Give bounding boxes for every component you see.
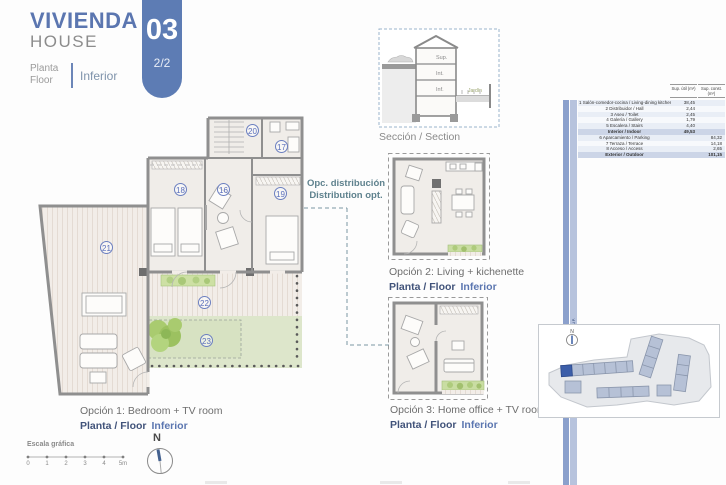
planter-icon	[448, 245, 482, 252]
header-divider	[71, 63, 73, 88]
scale-tick-label: 2	[61, 461, 71, 467]
area-table-sections: PLANTA / FLOOR SUP.1 Salón-comedor-cocin…	[570, 100, 725, 485]
option3-floor: Planta / FloorInferior	[390, 419, 498, 431]
table-row: Exterior / Outdoor101,15	[578, 152, 725, 158]
col-header-useful-area: Sup. útil (m²)	[670, 84, 697, 98]
room-number-18: 18	[174, 183, 187, 196]
level-label-int: Int.	[436, 71, 444, 77]
level-label-inf: Inf.	[436, 87, 444, 93]
unit-number-badge: 03 2/2	[142, 0, 182, 98]
site-plan-box: N	[538, 324, 720, 418]
scale-tick-labels: 012345m	[23, 461, 143, 469]
option1-floor: Planta / FloorInferior	[80, 420, 188, 432]
floor-value: Inferior	[80, 69, 117, 83]
distribution-note: Opc. distribución Distribution opt.	[303, 178, 389, 201]
section-caption: Sección / Section	[379, 131, 460, 143]
option-connector-dashes	[300, 200, 395, 352]
plan-sheet-page: VIVIENDA HOUSE Planta Floor Inferior 03 …	[0, 0, 726, 485]
table-section: PLANTA / FLOOR SUP.1 Salón-comedor-cocin…	[570, 100, 725, 485]
option3-floor-value: Inferior	[462, 419, 498, 431]
page-edge-mark	[205, 481, 227, 484]
room-number-19: 19	[274, 187, 287, 200]
site-north-icon: N	[567, 329, 578, 346]
area-table: Sup. útil (m²) Sup. const. (m²) VIVIENDA…	[563, 84, 725, 485]
page-title: VIVIENDA	[30, 8, 138, 34]
col-header-built-area: Sup. const. (m²)	[698, 84, 725, 98]
unit-number: 03	[142, 14, 182, 47]
floor-section-bar: PLANTA / FLOOR SUP.	[570, 100, 577, 485]
floor-word-es: Planta	[30, 63, 58, 75]
scale-tick-label: 0	[23, 461, 33, 467]
option2-floor-prefix: Planta / Floor	[389, 281, 456, 293]
option3-floor-prefix: Planta / Floor	[390, 419, 457, 431]
room-number-21: 21	[100, 241, 113, 254]
option2-floor: Planta / FloorInferior	[389, 281, 497, 293]
option1-caption: Opción 1: Bedroom + TV room	[80, 405, 223, 417]
option2-floor-value: Inferior	[461, 281, 497, 293]
main-floor-plan	[30, 110, 330, 402]
area-table-column-headers: Sup. útil (m²) Sup. const. (m²)	[563, 84, 725, 98]
floor-word-en: Floor	[30, 75, 58, 87]
floor-words: Planta Floor	[30, 63, 58, 87]
scale-bar-label: Escala gráfica	[27, 441, 74, 448]
planter-icon	[442, 381, 484, 390]
scale-tick-label: 1	[42, 461, 52, 467]
level-label-sup: Sup.	[436, 55, 448, 61]
unit-label-bar-text: VIVIENDA / HOUSE 03	[563, 100, 569, 485]
option1-floor-value: Inferior	[152, 420, 188, 432]
room-number-23: 23	[200, 334, 213, 347]
planter-icon	[161, 275, 215, 286]
option1-floor-prefix: Planta / Floor	[80, 420, 147, 432]
page-edge-mark	[508, 481, 530, 484]
option3-plan	[388, 297, 488, 400]
north-label: N	[153, 432, 161, 444]
site-plan: N	[539, 325, 719, 417]
garden-label: Jardín	[468, 88, 482, 94]
scale-tick-label: 3	[80, 461, 90, 467]
page-edge-mark	[380, 481, 402, 484]
room-number-20: 20	[246, 124, 259, 137]
distribution-note-es: Opc. distribución	[303, 178, 389, 190]
scale-tick-label: 4	[99, 461, 109, 467]
scale-tick-label: 5m	[118, 461, 128, 467]
option2-plan	[388, 153, 490, 260]
section-drawing: Sup. Int. Inf. Jardín	[378, 28, 500, 128]
highlighted-unit	[561, 365, 573, 377]
room-number-17: 17	[275, 140, 288, 153]
sheet-index: 2/2	[142, 56, 182, 70]
unit-label-bar: VIVIENDA / HOUSE 03	[563, 100, 569, 485]
page-subtitle: HOUSE	[30, 32, 98, 52]
north-compass-icon	[146, 447, 176, 477]
svg-text:N: N	[570, 329, 574, 335]
room-number-22: 22	[198, 296, 211, 309]
option3-caption: Opción 3: Home office + TV room	[390, 404, 546, 416]
room-number-16: 16	[217, 183, 230, 196]
option2-caption: Opción 2: Living + kichenette	[389, 266, 524, 278]
